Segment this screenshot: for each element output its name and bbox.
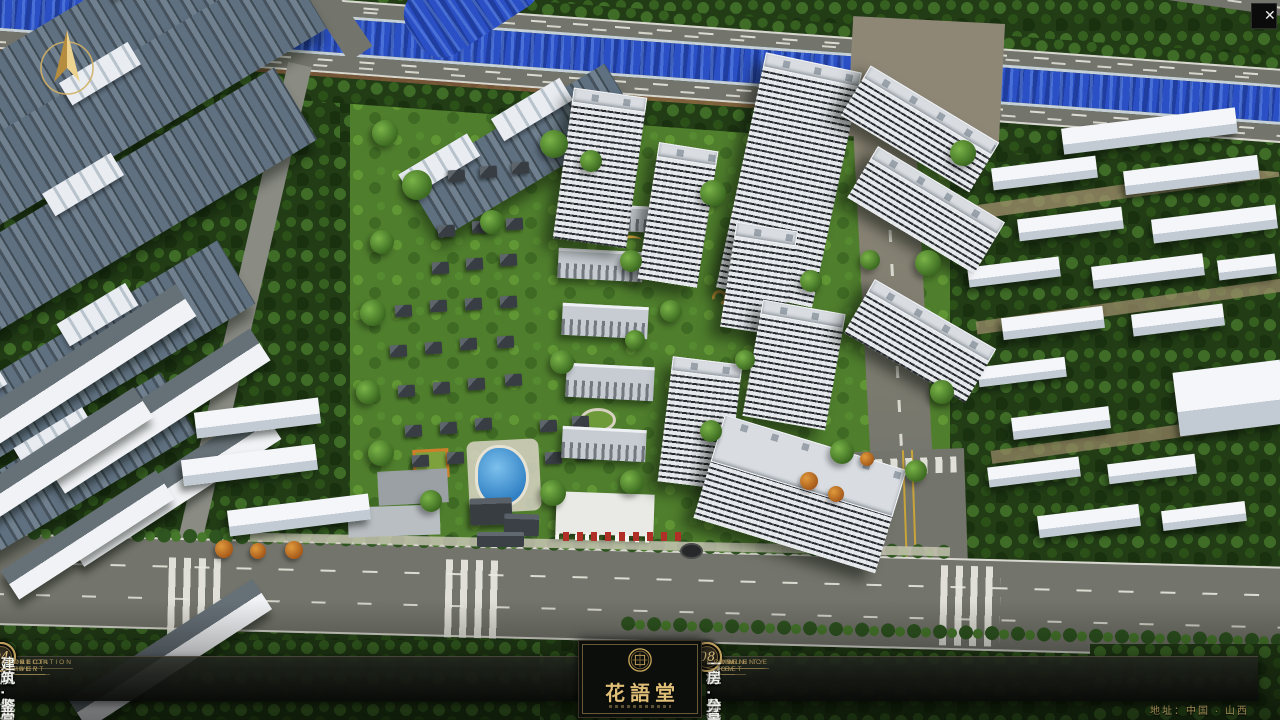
entrance-retail-strip <box>555 491 654 536</box>
brand-title: 花語堂 <box>579 677 701 706</box>
tree-clump <box>800 270 822 292</box>
tree-clump <box>420 490 442 512</box>
courtyard-villa <box>432 262 450 275</box>
tree-clump <box>356 380 380 404</box>
courtyard-villa <box>497 336 515 349</box>
tree-clump <box>550 350 574 374</box>
tree-clump <box>372 120 398 146</box>
brand-logo-panel[interactable]: 花語堂 <box>578 640 702 718</box>
crenellated-rooftop <box>99 0 181 1</box>
courtyard-villa <box>440 422 458 435</box>
courtyard-villa <box>540 420 558 433</box>
brand-seal-icon <box>627 647 653 673</box>
courtyard-villa <box>438 225 456 238</box>
sales-presentation-screen: ✕ 01 品牌·介绍BRAND SUPPORT 02 区位·价值LOCATION… <box>0 0 1280 720</box>
bottom-nav-left: 01 品牌·介绍BRAND SUPPORT 02 区位·价值LOCATION V… <box>0 656 578 701</box>
tree-clump <box>905 460 927 482</box>
tree-clump <box>540 130 568 158</box>
tree-clump <box>540 480 566 506</box>
courtyard-villa <box>430 300 448 313</box>
courtyard-villa <box>398 385 416 398</box>
courtyard-villa <box>545 452 563 465</box>
swimming-pool <box>478 448 526 504</box>
close-icon: ✕ <box>1264 4 1276 28</box>
tree-clump <box>700 420 722 442</box>
brand-subtitle-line <box>609 705 671 708</box>
tree-clump <box>735 350 755 370</box>
tree-clump <box>360 300 386 326</box>
courtyard-villa <box>433 382 451 395</box>
tree-clump <box>368 440 394 466</box>
courtyard-villa <box>390 345 408 358</box>
courtyard-villa <box>505 374 523 387</box>
tree-clump <box>700 180 726 206</box>
autumn-tree-clump <box>800 472 818 490</box>
red-lantern-row <box>563 532 685 541</box>
courtyard-villa <box>412 455 430 468</box>
courtyard-villa <box>465 298 483 311</box>
autumn-tree-clump <box>215 540 233 558</box>
tree-clump <box>915 250 941 276</box>
courtyard-villa <box>506 218 524 231</box>
tree-clump <box>580 150 602 172</box>
courtyard-villa <box>447 452 465 465</box>
tree-clump <box>402 170 432 200</box>
tree-clump <box>660 300 682 322</box>
courtyard-villa <box>460 338 478 351</box>
courtyard-villa <box>425 342 443 355</box>
compass-north-icon <box>34 26 100 100</box>
autumn-tree-clump <box>860 452 874 466</box>
courtyard-villa <box>468 378 486 391</box>
nav-label-en: COMMUNITY <box>707 660 765 669</box>
midrise-garden-flat <box>561 426 647 462</box>
courtyard-villa <box>500 296 518 309</box>
entrance-circle <box>680 543 703 559</box>
midrise-garden-flat <box>565 363 655 402</box>
courtyard-villa <box>480 166 498 179</box>
courtyard-villa <box>448 170 466 183</box>
tree-clump <box>830 440 854 464</box>
tree-clump <box>370 230 394 254</box>
nav-label-en: APPRECIATION <box>1 660 73 669</box>
tree-clump <box>480 210 504 234</box>
tree-clump <box>930 380 954 404</box>
autumn-tree-clump <box>250 543 266 559</box>
bottom-nav-right: 05 园林·景观GARDEN STREET 06 精装·体验EXPERIENCE… <box>706 656 1258 701</box>
warehouse-building <box>1173 360 1280 437</box>
courtyard-villa <box>500 254 518 267</box>
courtyard-villa <box>405 425 423 438</box>
tree-clump <box>860 250 880 270</box>
courtyard-villa <box>475 418 493 431</box>
courtyard-villa <box>512 162 530 175</box>
tree-clump <box>620 470 644 494</box>
autumn-tree-clump <box>285 541 303 559</box>
courtyard-villa <box>395 305 413 318</box>
autumn-tree-clump <box>828 486 844 502</box>
entrance-gate-roof <box>477 532 524 547</box>
tree-clump <box>950 140 976 166</box>
courtyard-villa <box>466 258 484 271</box>
close-button[interactable]: ✕ <box>1251 3 1277 29</box>
project-address: 地址：中国 · 山西 <box>1150 702 1249 717</box>
tree-clump <box>625 330 645 350</box>
tree-clump <box>620 250 642 272</box>
